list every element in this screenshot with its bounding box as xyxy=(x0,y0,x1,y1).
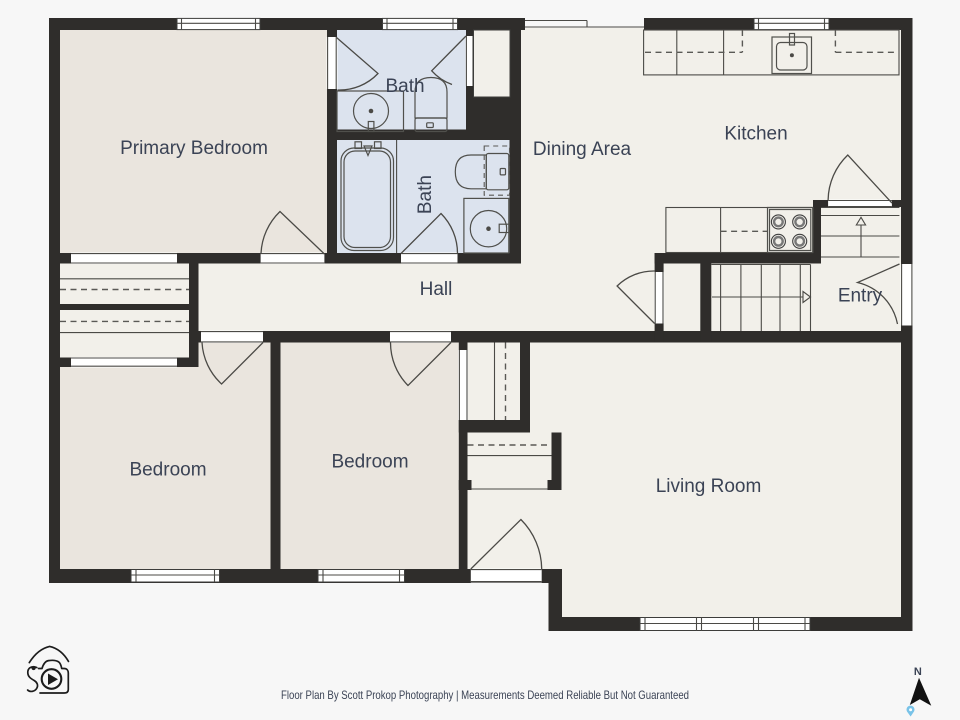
svg-text:Primary Bedroom: Primary Bedroom xyxy=(120,138,268,159)
svg-text:Bath: Bath xyxy=(415,175,436,214)
svg-text:Bedroom: Bedroom xyxy=(129,460,206,481)
svg-text:Floor Plan By Scott Prokop Pho: Floor Plan By Scott Prokop Photography |… xyxy=(281,688,689,702)
svg-text:Hall: Hall xyxy=(420,279,453,300)
svg-text:Entry: Entry xyxy=(838,286,883,307)
svg-text:Dining Area: Dining Area xyxy=(533,139,632,160)
svg-text:Bedroom: Bedroom xyxy=(331,452,408,473)
svg-text:Living Room: Living Room xyxy=(656,476,762,497)
svg-text:N: N xyxy=(914,666,922,678)
svg-text:Bath: Bath xyxy=(385,76,424,97)
svg-text:Kitchen: Kitchen xyxy=(724,124,787,145)
